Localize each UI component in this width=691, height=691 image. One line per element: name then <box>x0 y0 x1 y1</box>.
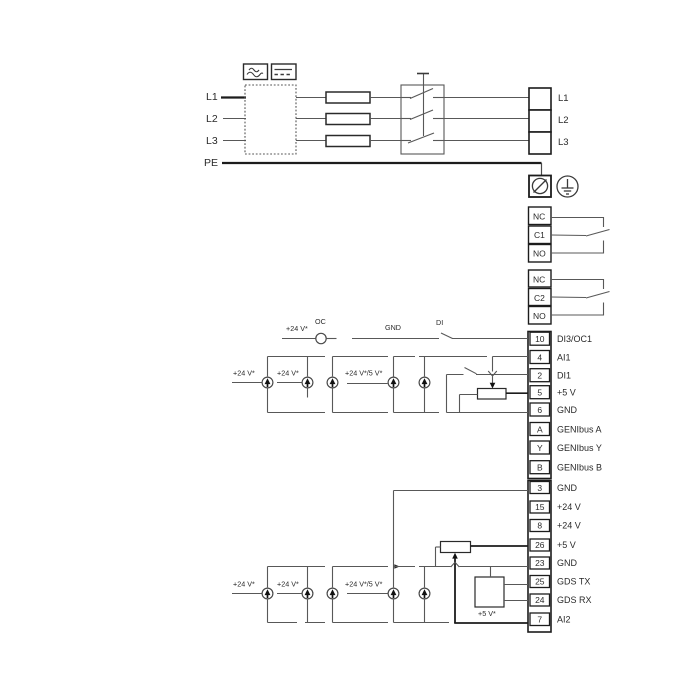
svg-text:8: 8 <box>537 521 542 531</box>
svg-text:NO: NO <box>533 311 546 321</box>
svg-text:L3: L3 <box>206 135 218 147</box>
svg-text:OC: OC <box>315 317 326 326</box>
svg-text:L1: L1 <box>558 93 569 104</box>
svg-text:A: A <box>537 424 543 434</box>
svg-text:+5 V: +5 V <box>557 540 576 550</box>
svg-text:5: 5 <box>537 388 542 398</box>
svg-text:DI3/OC1: DI3/OC1 <box>557 334 592 344</box>
svg-text:+24 V*: +24 V* <box>277 580 299 589</box>
svg-text:GENIbus B: GENIbus B <box>557 463 602 473</box>
svg-text:GND: GND <box>557 558 578 568</box>
svg-text:+24 V*: +24 V* <box>286 324 308 333</box>
svg-text:+5 V*: +5 V* <box>478 609 496 618</box>
svg-text:+24 V*: +24 V* <box>277 369 299 378</box>
svg-text:NC: NC <box>533 211 545 221</box>
svg-text:PE: PE <box>204 157 218 169</box>
svg-text:GND: GND <box>385 323 401 332</box>
svg-text:GENIbus Y: GENIbus Y <box>557 443 602 453</box>
svg-text:Y: Y <box>537 443 543 453</box>
svg-text:+24 V: +24 V <box>557 521 581 531</box>
svg-text:4: 4 <box>537 352 542 362</box>
svg-text:C2: C2 <box>534 293 545 303</box>
svg-text:+5 V: +5 V <box>557 388 576 398</box>
svg-text:B: B <box>537 463 543 473</box>
svg-text:3: 3 <box>537 483 542 493</box>
svg-text:L2: L2 <box>206 113 218 125</box>
svg-text:C1: C1 <box>534 230 545 240</box>
svg-text:L2: L2 <box>558 115 569 126</box>
svg-text:NO: NO <box>533 249 546 259</box>
svg-text:7: 7 <box>537 615 542 625</box>
svg-text:24: 24 <box>535 595 545 605</box>
svg-text:+24 V: +24 V <box>557 502 581 512</box>
svg-text:DI: DI <box>436 318 443 327</box>
svg-text:GND: GND <box>557 405 578 415</box>
svg-text:+24 V*/5 V*: +24 V*/5 V* <box>345 369 383 378</box>
svg-text:23: 23 <box>535 558 545 568</box>
svg-text:NC: NC <box>533 274 545 284</box>
svg-text:25: 25 <box>535 577 545 587</box>
svg-text:AI1: AI1 <box>557 352 571 362</box>
svg-text:26: 26 <box>535 540 545 550</box>
svg-text:GND: GND <box>557 483 578 493</box>
svg-text:DI1: DI1 <box>557 371 571 381</box>
svg-text:GENIbus A: GENIbus A <box>557 424 602 434</box>
svg-text:+24 V*/5 V*: +24 V*/5 V* <box>345 580 383 589</box>
svg-text:GDS RX: GDS RX <box>557 595 592 605</box>
svg-text:6: 6 <box>537 405 542 415</box>
svg-text:+24 V*: +24 V* <box>233 580 255 589</box>
svg-text:+24 V*: +24 V* <box>233 369 255 378</box>
svg-text:2: 2 <box>537 371 542 381</box>
svg-text:10: 10 <box>535 334 545 344</box>
svg-text:L3: L3 <box>558 137 569 148</box>
svg-text:L1: L1 <box>206 91 218 103</box>
svg-text:GDS TX: GDS TX <box>557 577 590 587</box>
svg-text:15: 15 <box>535 502 545 512</box>
svg-text:AI2: AI2 <box>557 615 571 625</box>
